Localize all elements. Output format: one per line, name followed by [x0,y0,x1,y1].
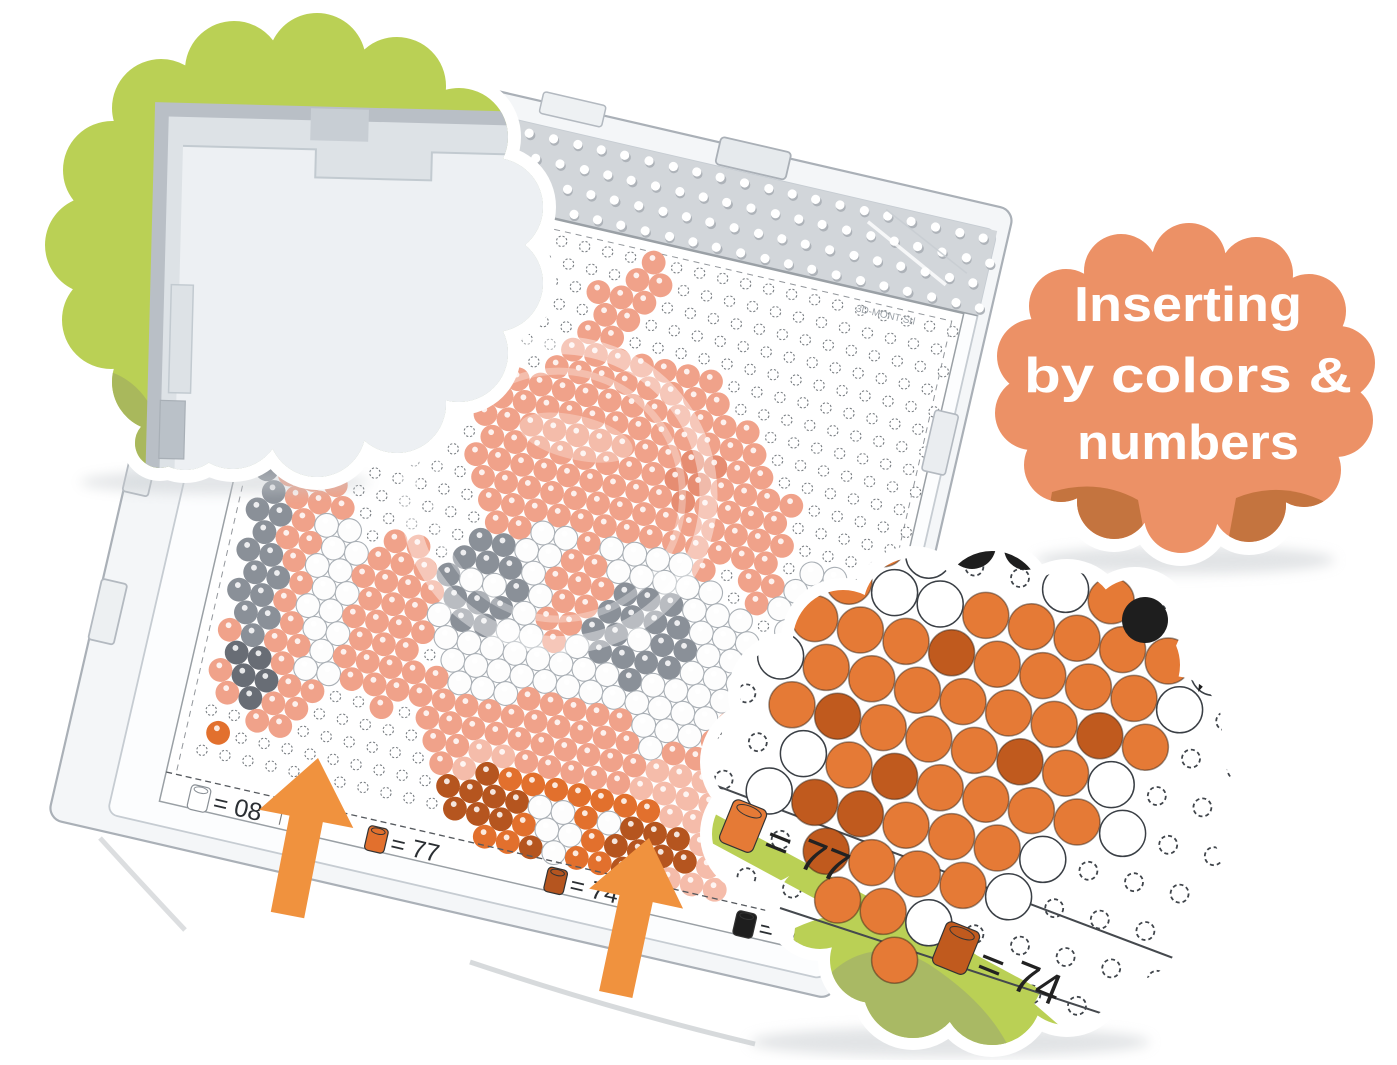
svg-text:numbers: numbers [1077,416,1299,470]
svg-text:by colors &: by colors & [1024,349,1352,403]
svg-text:Inserting: Inserting [1074,278,1302,332]
